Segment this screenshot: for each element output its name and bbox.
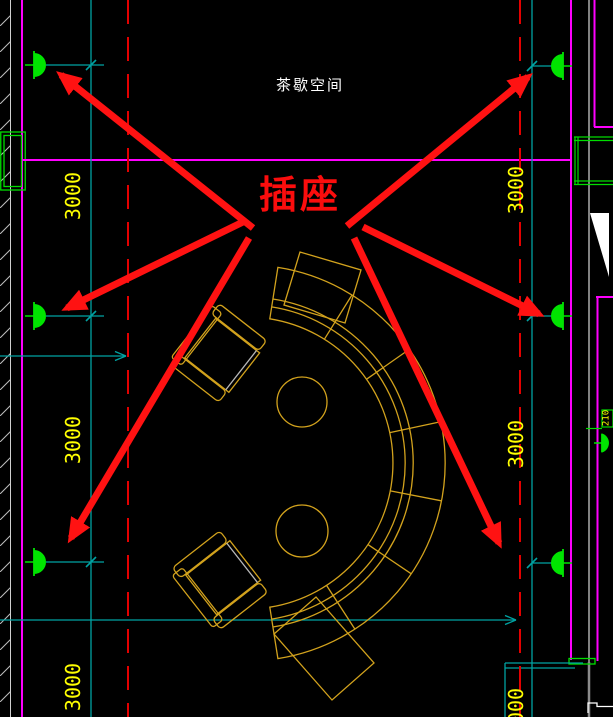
sofa-end-seat-bottom bbox=[274, 597, 374, 700]
socket-symbol-top-left bbox=[25, 51, 46, 79]
curved-sofa-band bbox=[270, 267, 445, 658]
callout-arrow-mid-right bbox=[363, 227, 539, 314]
dimension-label-right-3: 3000 bbox=[506, 688, 526, 717]
corner-detail-bracket bbox=[588, 703, 613, 713]
dimension-label-left-3: 3000 bbox=[63, 663, 83, 711]
floorplan-linework bbox=[0, 0, 613, 717]
side-table-bottom bbox=[276, 505, 328, 557]
floorplan-canvas: 茶歇空间 插座 3000 3000 3000 3000 3000 3000 21… bbox=[0, 0, 613, 717]
dimension-label-right-2: 3000 bbox=[506, 420, 526, 468]
left-door-frame bbox=[1, 132, 26, 190]
side-table-top bbox=[277, 377, 327, 427]
dimension-label-left-1: 3000 bbox=[63, 172, 83, 220]
socket-symbol-bottom-right bbox=[552, 549, 573, 577]
left-wall-hatch bbox=[0, 0, 11, 717]
armchair-bottom bbox=[168, 530, 269, 633]
room-label: 茶歇空间 bbox=[276, 74, 344, 95]
furniture bbox=[167, 252, 445, 700]
side-dimension-label: 210 bbox=[603, 410, 612, 426]
callout-arrows bbox=[61, 75, 539, 543]
dimension-label-left-2: 3000 bbox=[63, 416, 83, 464]
callout-arrow-top-left bbox=[61, 75, 253, 228]
socket-callout-label: 插座 bbox=[259, 176, 341, 214]
door-swing-wedge bbox=[590, 213, 609, 277]
socket-symbol-top-right bbox=[552, 52, 573, 80]
right-door-frame bbox=[574, 137, 613, 185]
dimension-label-right-1: 3000 bbox=[506, 166, 526, 214]
socket-symbol-right-wall bbox=[594, 434, 608, 452]
socket-symbol-bottom-left bbox=[25, 548, 46, 576]
socket-symbol-mid-right bbox=[552, 302, 573, 330]
socket-symbol-mid-left bbox=[25, 302, 46, 330]
curved-sofa-back-line-1 bbox=[272, 307, 406, 619]
curved-sofa-back-line-2 bbox=[273, 299, 413, 627]
callout-arrow-top-right bbox=[347, 77, 528, 226]
